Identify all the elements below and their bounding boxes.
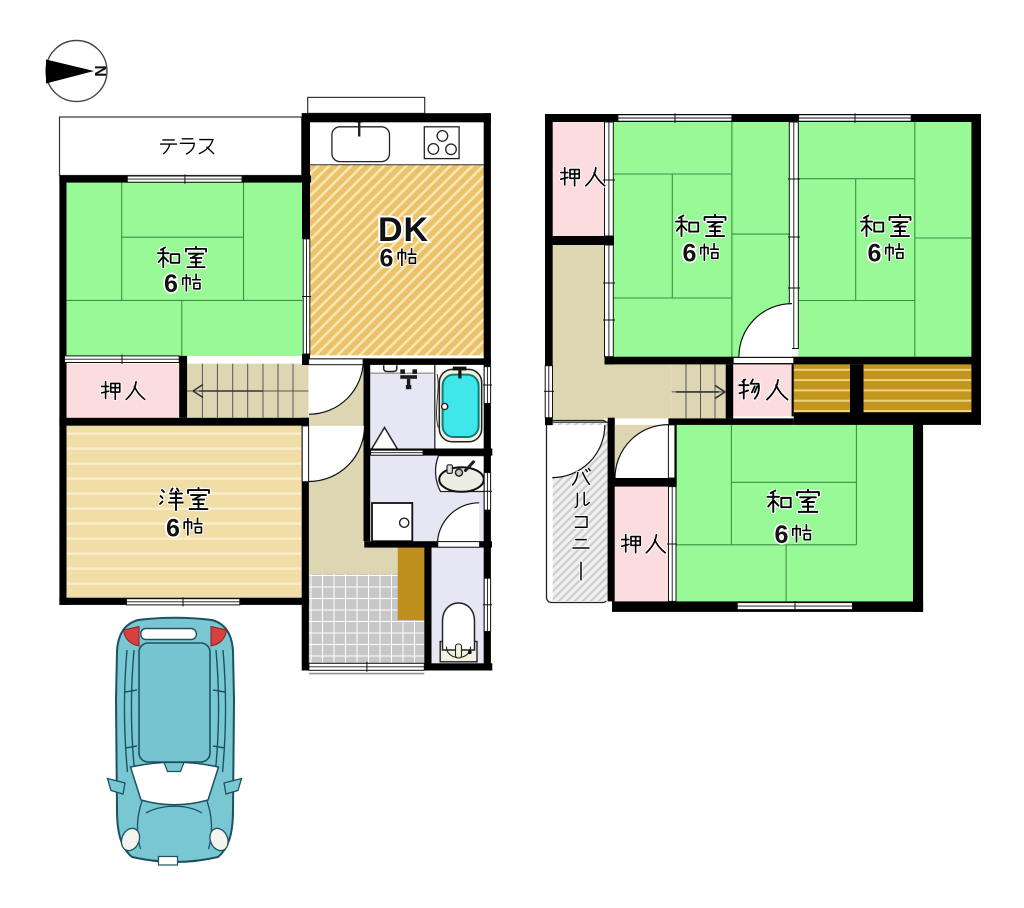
svg-text:6: 6 xyxy=(868,240,882,268)
svg-text:DK: DK xyxy=(378,211,429,249)
svg-text:6: 6 xyxy=(775,521,789,549)
svg-text:6: 6 xyxy=(166,515,180,543)
svg-text:N: N xyxy=(91,65,108,77)
svg-text:6: 6 xyxy=(683,240,697,268)
svg-text:6: 6 xyxy=(380,245,394,273)
svg-text:6: 6 xyxy=(164,270,178,298)
